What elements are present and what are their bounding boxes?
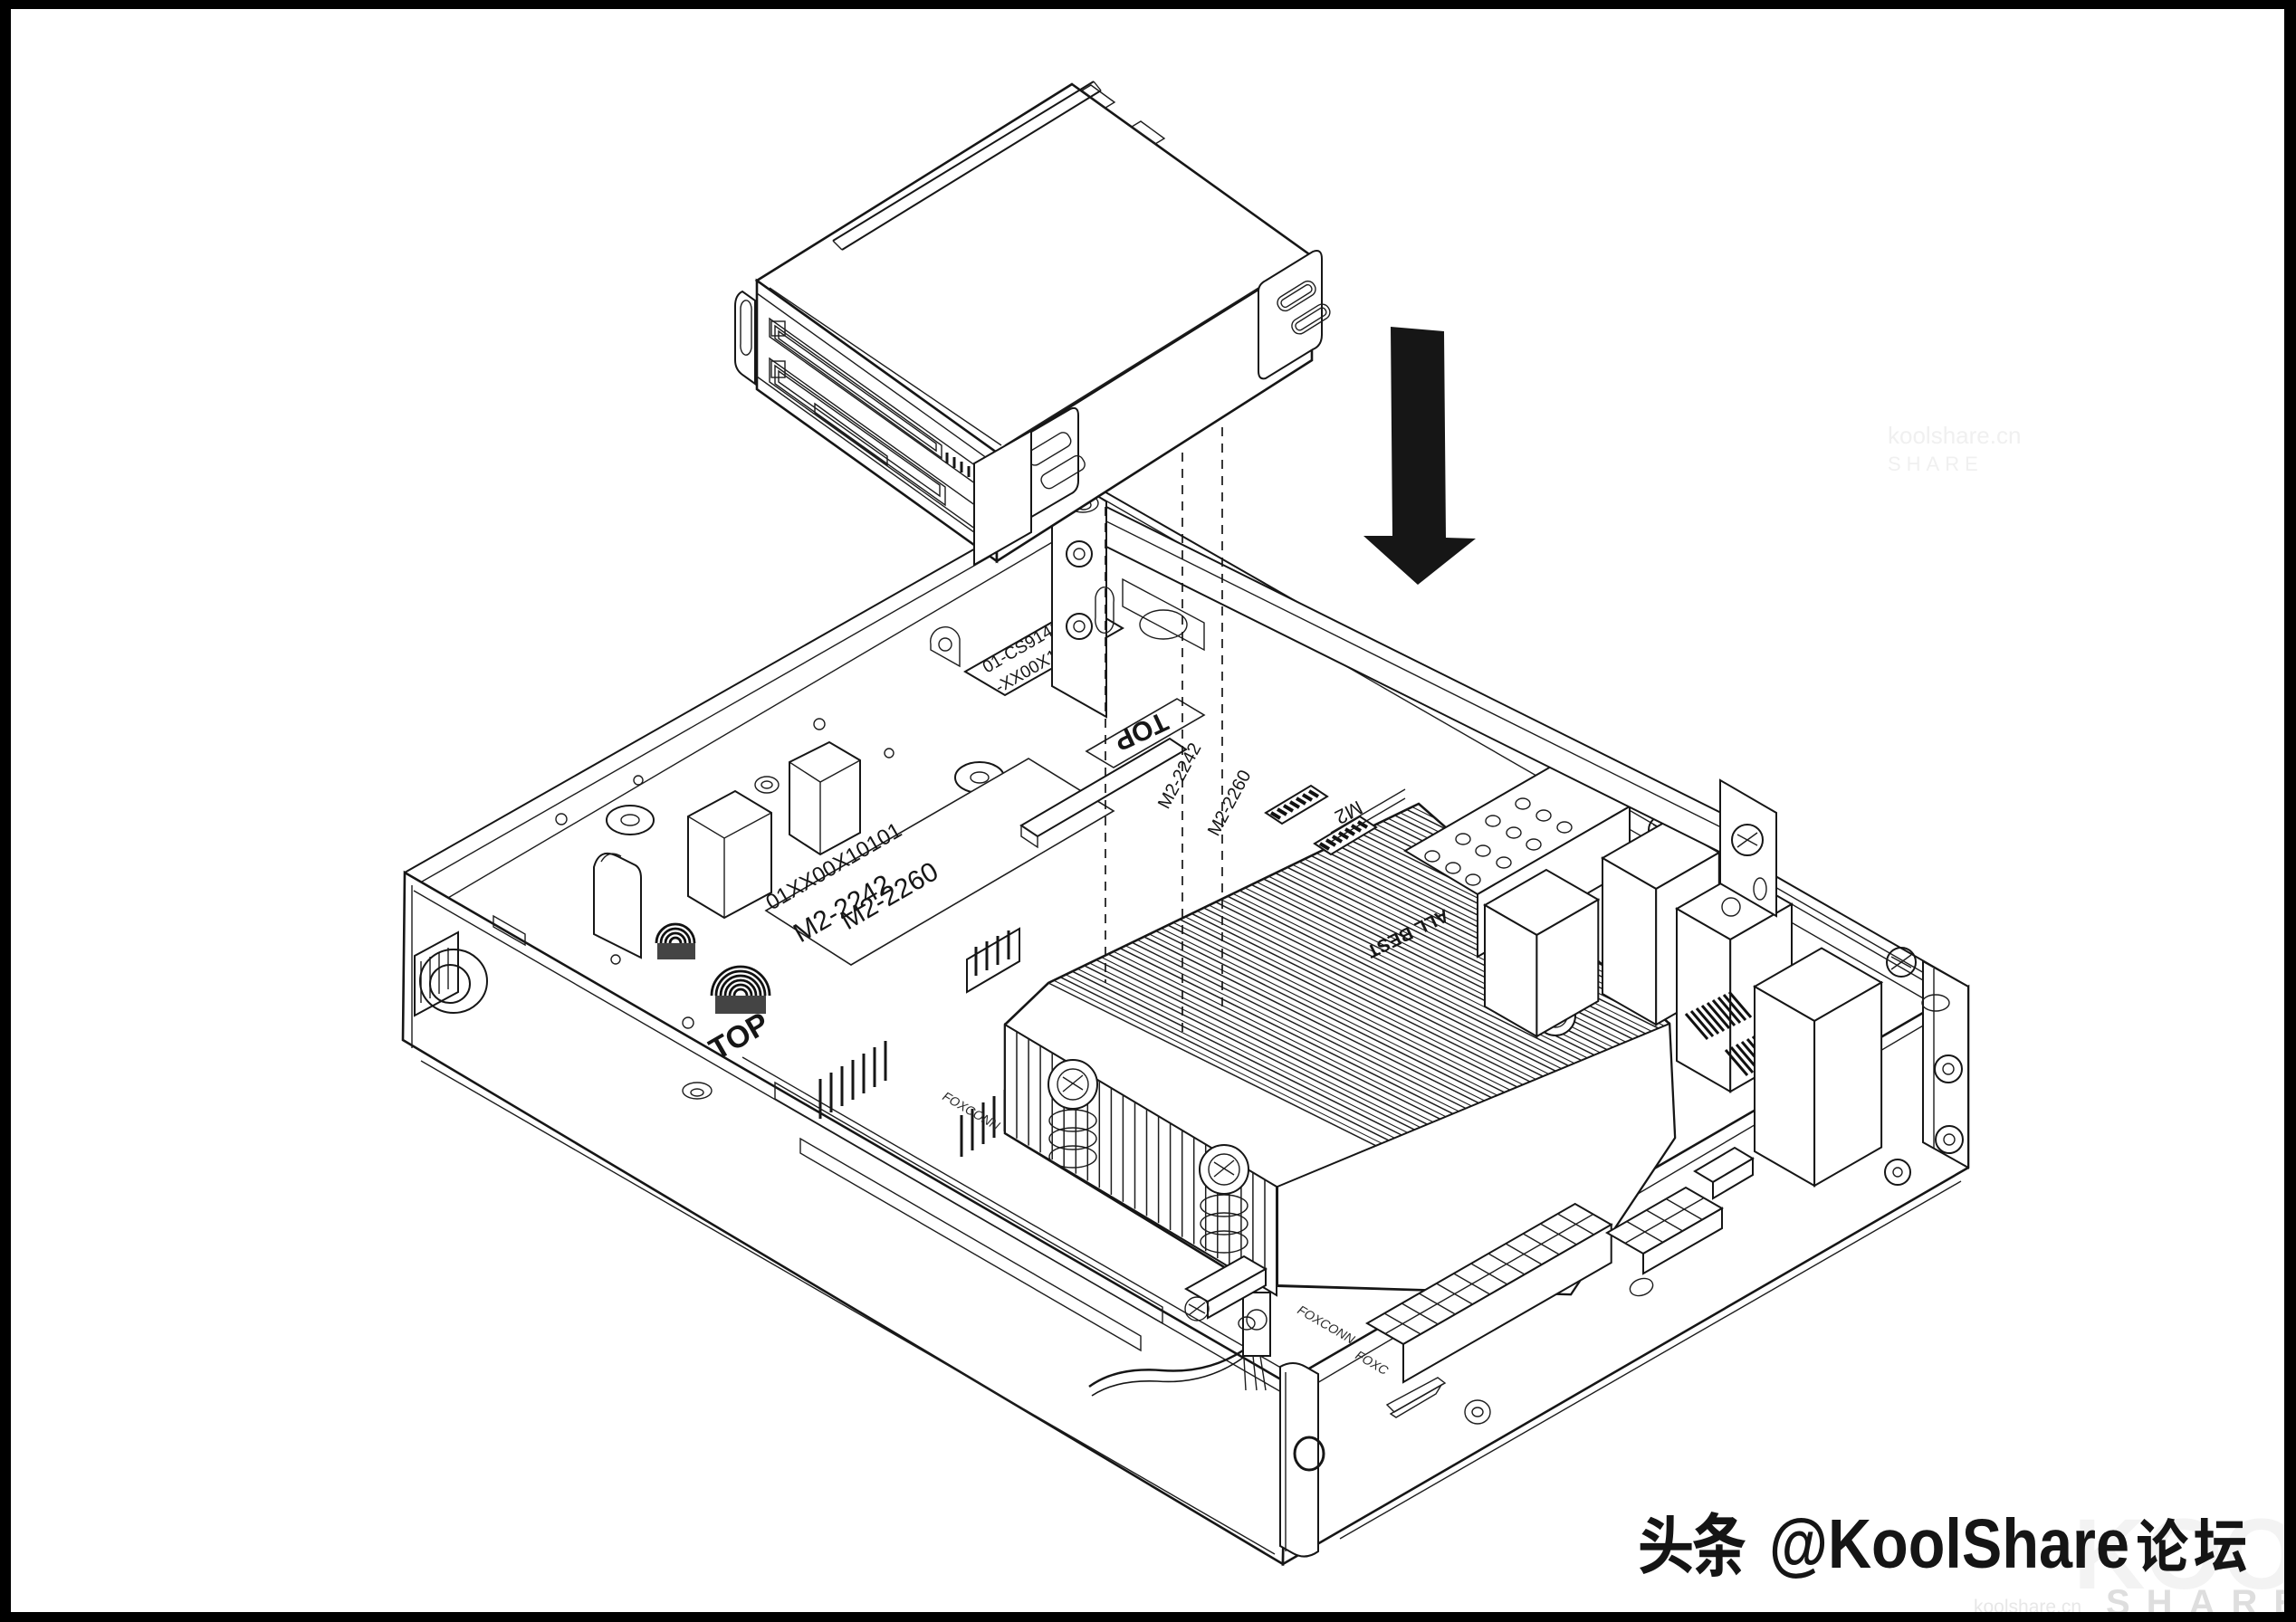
svg-text:koolshare.cn: koolshare.cn xyxy=(1888,422,2021,449)
svg-text:SHARE: SHARE xyxy=(1888,453,1984,475)
svg-text:@KoolShare: @KoolShare xyxy=(1769,1505,2129,1583)
